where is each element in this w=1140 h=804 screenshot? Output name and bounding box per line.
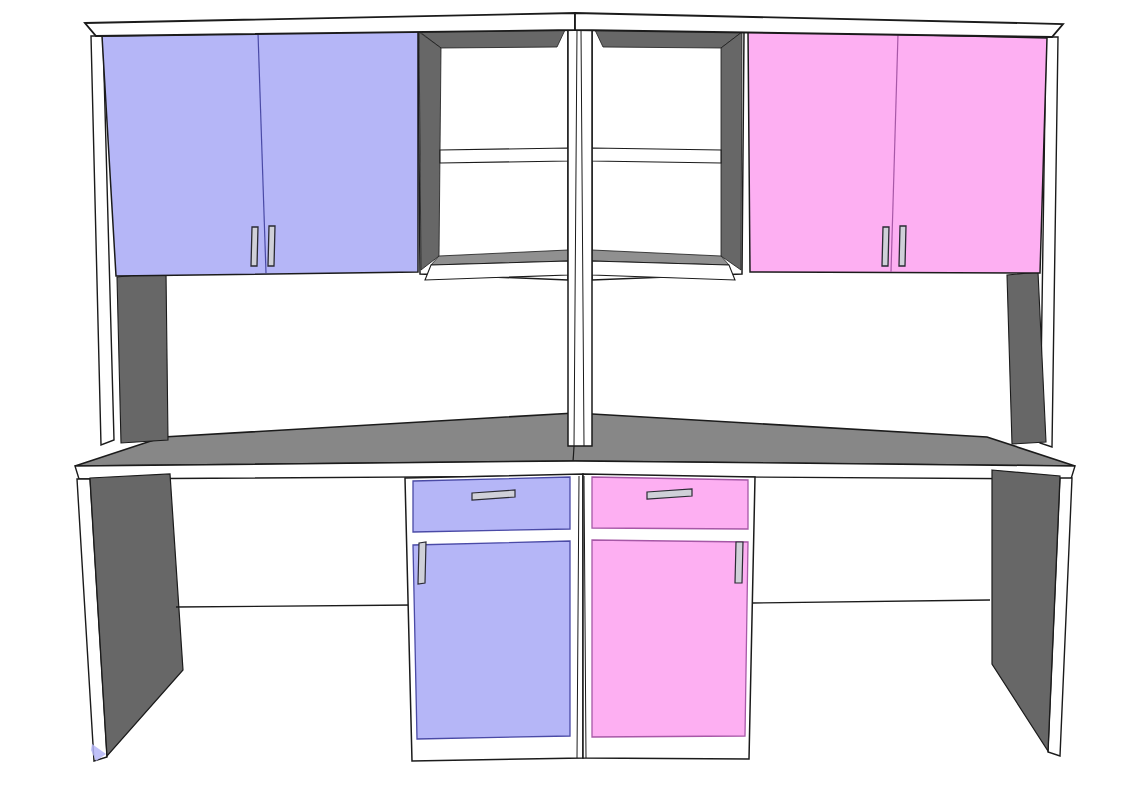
shelf-unit-left-inner-wall <box>419 32 441 270</box>
modesty-panel-line-right <box>752 600 990 603</box>
shelf-unit-right-mid-shelf <box>592 148 721 163</box>
hutch-assembly <box>85 13 1063 447</box>
hutch-side-panel-left <box>117 272 168 443</box>
pedestal-right-door-handle <box>735 542 743 583</box>
shelf-unit-right-inner-wall <box>721 32 742 270</box>
desk-assembly <box>75 413 1075 761</box>
hutch-side-panel-right <box>1007 272 1046 444</box>
upper-cabinet-right <box>748 31 1047 273</box>
upper-cabinet-left-doors <box>102 31 418 276</box>
upper-cabinet-right-handle-1 <box>882 227 889 266</box>
furniture-drawing-canvas <box>0 0 1140 804</box>
twin-desk-hutch-drawing <box>0 0 1140 804</box>
pedestal-left-door-handle <box>418 542 426 584</box>
desk-side-panel-left <box>90 474 183 756</box>
open-shelf-unit-right <box>592 29 744 280</box>
center-divider <box>568 29 592 446</box>
pedestal-right-door <box>592 540 748 737</box>
open-shelf-unit-left <box>418 29 568 280</box>
upper-cabinet-right-handle-2 <box>899 226 906 266</box>
pedestal-left-drawer <box>413 477 570 532</box>
shelf-unit-left-mid-shelf <box>440 148 568 163</box>
desk-side-panel-right <box>992 470 1060 751</box>
shelf-unit-left-inner-top <box>420 30 565 48</box>
upper-cabinet-left-handle-1 <box>251 227 258 266</box>
upper-cabinet-left <box>102 31 418 276</box>
upper-cabinet-left-handle-2 <box>268 226 275 266</box>
modesty-panel-line-left <box>176 605 414 607</box>
pedestal-left-door <box>413 541 570 739</box>
pedestal-right-drawer <box>592 477 748 529</box>
